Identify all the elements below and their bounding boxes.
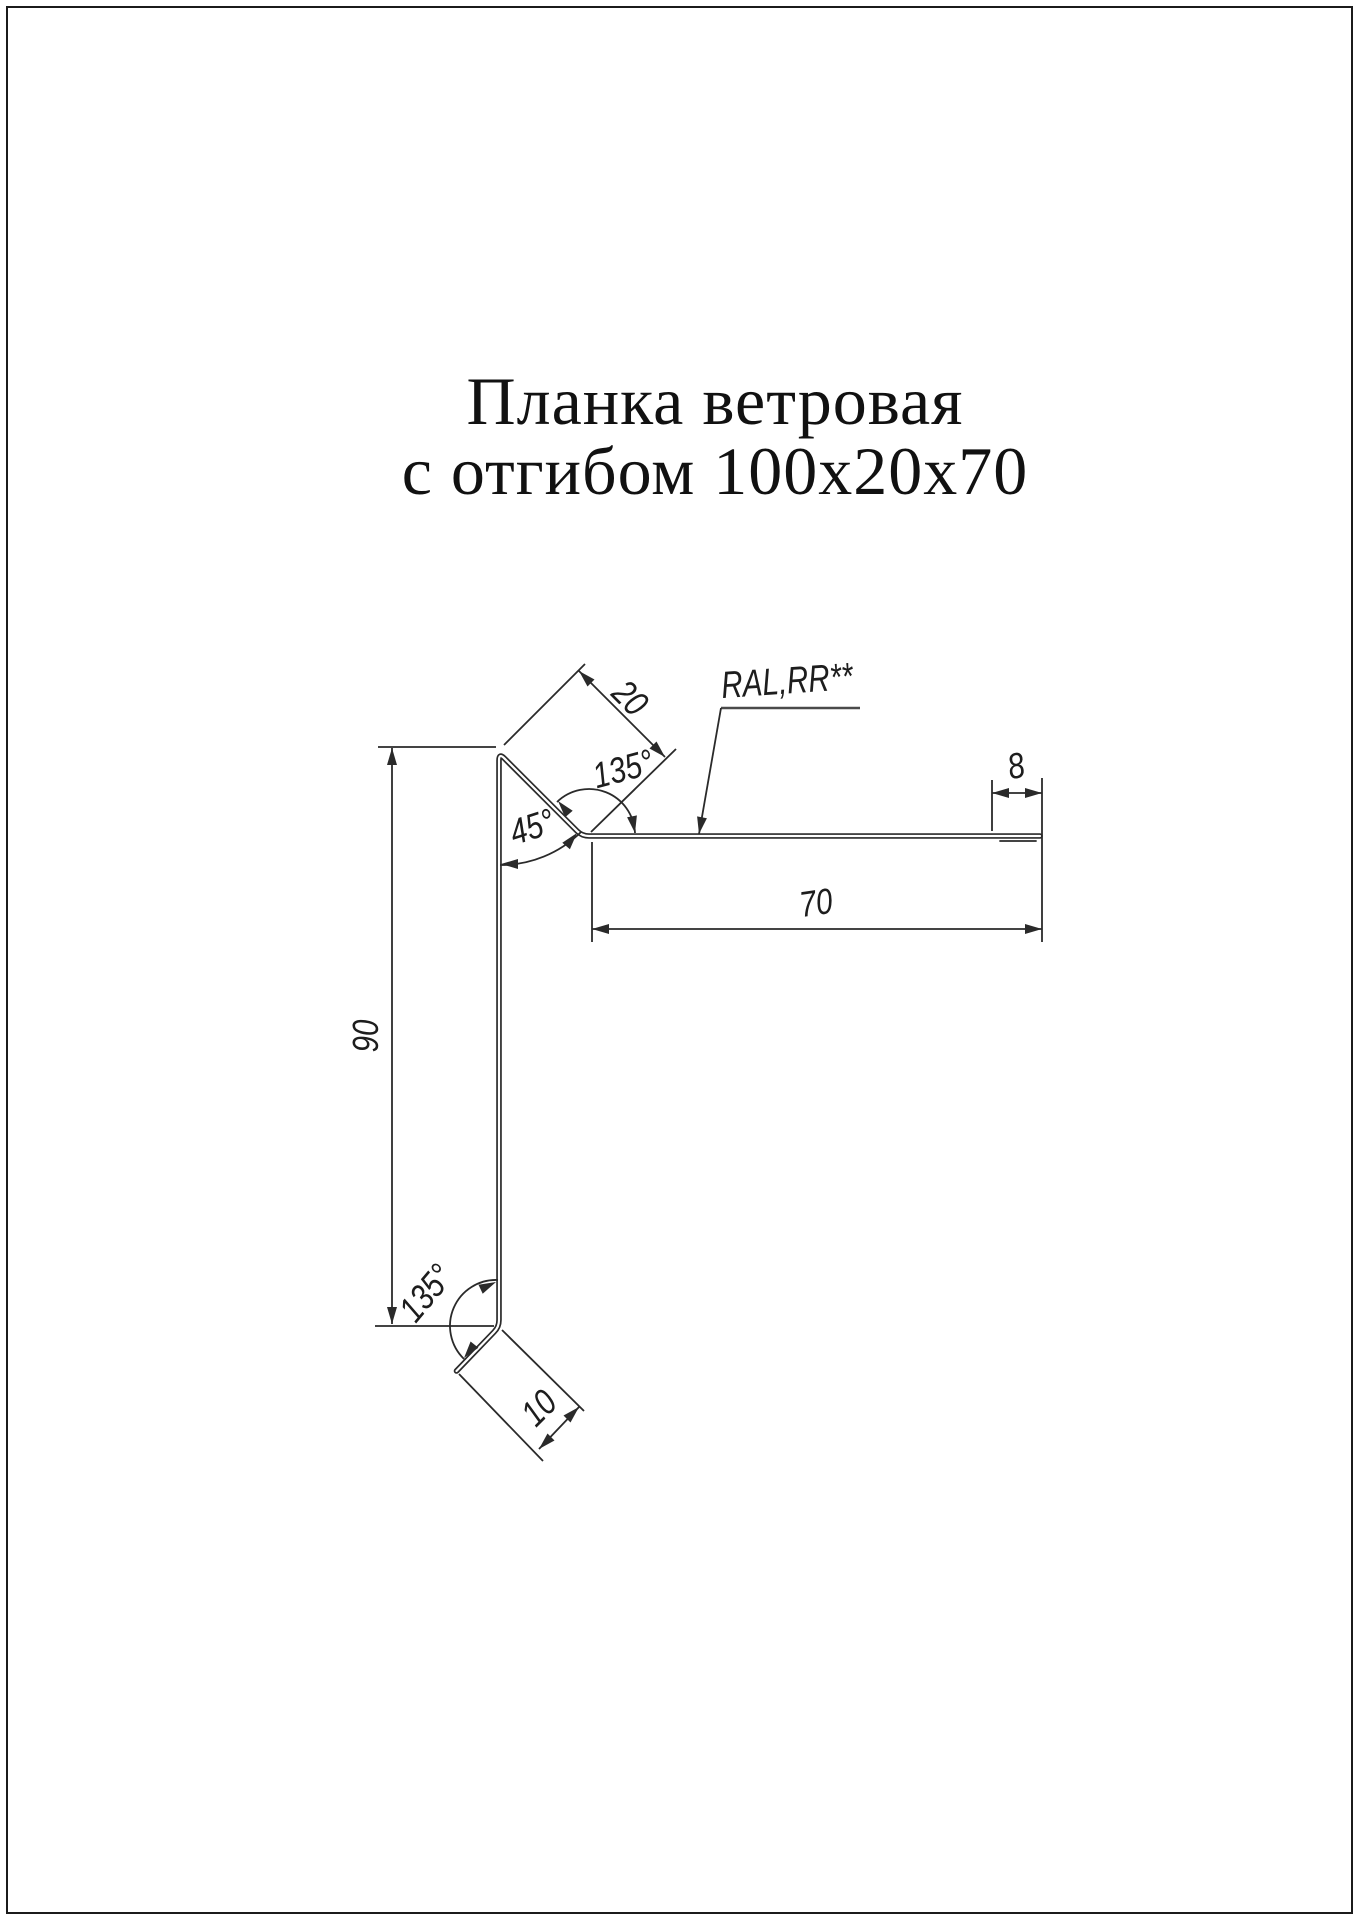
- dimension-height-90: [375, 747, 496, 1326]
- drawing-page: Планка ветровая с отгибом 100х20х70: [0, 0, 1359, 1920]
- dim-70-label: 70: [797, 880, 835, 926]
- angle-135-bottom-arc: [450, 1280, 498, 1359]
- material-leader: [697, 708, 860, 834]
- dimension-hem-8: [992, 778, 1042, 942]
- drawing-canvas: [0, 0, 1359, 1920]
- material-label: RAL,RR**: [720, 656, 854, 708]
- dim-90-label: 90: [345, 1020, 387, 1053]
- profile-outline: [457, 756, 1041, 1371]
